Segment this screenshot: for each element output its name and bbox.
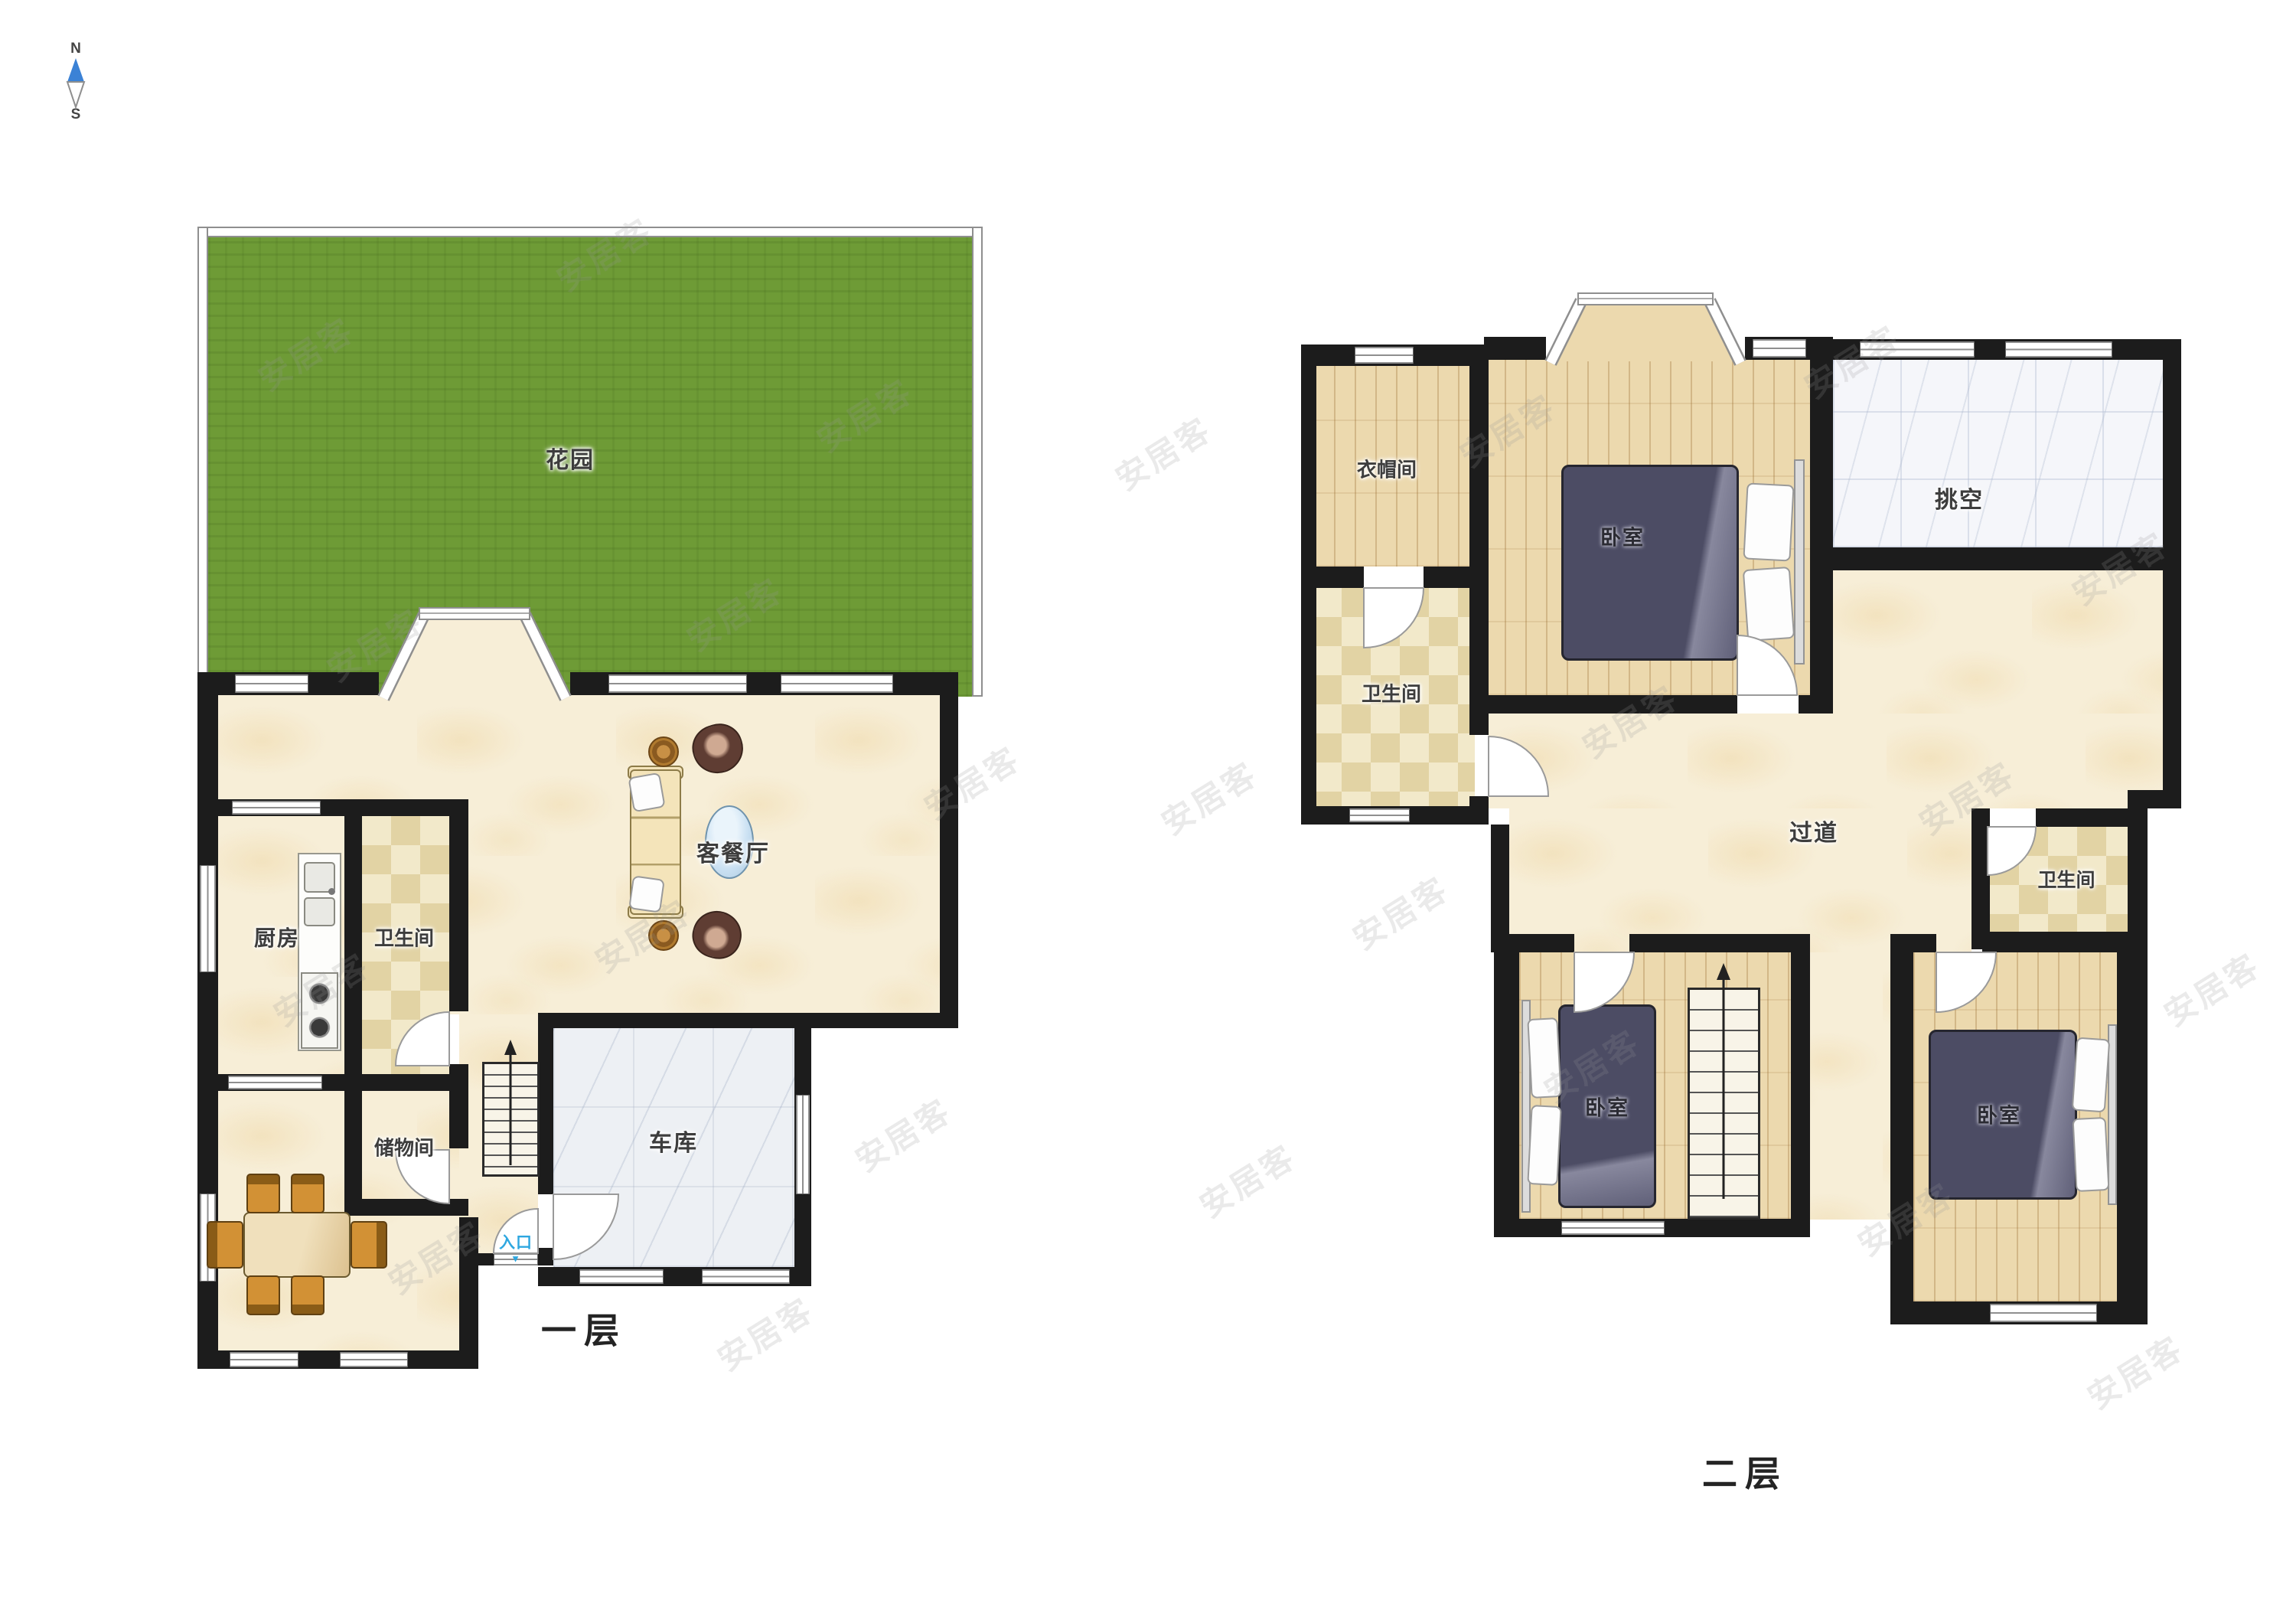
bed-pillow bbox=[1527, 1017, 1561, 1099]
window-icon bbox=[1561, 1221, 1665, 1235]
label-garden: 花园 bbox=[546, 441, 595, 475]
wall bbox=[538, 1248, 553, 1265]
wall bbox=[1799, 695, 1833, 714]
wall bbox=[1890, 934, 1913, 1301]
wall bbox=[449, 816, 468, 1011]
watermark-text: 安居客 bbox=[2077, 1323, 2191, 1419]
bed-pillow bbox=[2073, 1117, 2110, 1192]
watermark-text: 安居客 bbox=[1342, 864, 1456, 959]
label-floor2: 二层 bbox=[1702, 1446, 1788, 1497]
bed-pillow bbox=[1743, 482, 1794, 561]
garden-wall-left bbox=[197, 227, 208, 697]
wall bbox=[2128, 790, 2181, 808]
window-icon bbox=[340, 1352, 408, 1367]
wall bbox=[1484, 695, 1737, 714]
side-table bbox=[648, 920, 679, 951]
window-icon bbox=[1860, 341, 1975, 358]
label-entrance: 入口 bbox=[499, 1230, 533, 1253]
wall bbox=[940, 672, 958, 1028]
bed-headboard bbox=[1794, 459, 1805, 665]
window-icon bbox=[235, 674, 308, 693]
stairs-2f[interactable] bbox=[1688, 988, 1760, 1220]
label-hallway: 过道 bbox=[1789, 814, 1838, 847]
label-bedroom-left: 卧室 bbox=[1585, 1092, 1629, 1122]
wall bbox=[2117, 934, 2148, 1301]
faucet-icon bbox=[328, 888, 335, 895]
window-icon bbox=[228, 1076, 322, 1089]
label-garage: 车库 bbox=[649, 1124, 698, 1158]
wall bbox=[1491, 825, 1509, 934]
watermark-text: 安居客 bbox=[1151, 749, 1265, 844]
stairs-1f[interactable] bbox=[482, 1062, 540, 1177]
compass-south-needle bbox=[67, 82, 84, 107]
wall bbox=[344, 1199, 468, 1216]
bed-pillow bbox=[1743, 567, 1795, 642]
wall bbox=[1833, 547, 2181, 570]
window-icon bbox=[200, 865, 216, 972]
wall bbox=[538, 1013, 553, 1194]
dining-chair bbox=[291, 1275, 325, 1315]
wall bbox=[449, 1064, 468, 1074]
bed-pillow bbox=[2072, 1037, 2111, 1113]
wall bbox=[459, 1217, 478, 1369]
watermark-text: 安居客 bbox=[1189, 1132, 1303, 1227]
bed-pillow bbox=[1527, 1105, 1561, 1186]
wall bbox=[2163, 339, 2181, 808]
floorplan-canvas: N S bbox=[0, 0, 2296, 1623]
wall bbox=[1484, 337, 1546, 360]
garden-wall-top bbox=[197, 227, 983, 237]
bed-main bbox=[1561, 465, 1739, 661]
sofa-pillow bbox=[628, 772, 665, 813]
entrance-arrow-icon: ▼ bbox=[510, 1253, 521, 1265]
wall bbox=[344, 1091, 362, 1199]
label-living-dining: 客餐厅 bbox=[696, 834, 770, 868]
room-void bbox=[1833, 360, 2163, 547]
wall bbox=[344, 816, 362, 1074]
label-kitchen: 厨房 bbox=[254, 922, 300, 952]
wall bbox=[1494, 934, 1519, 1219]
window-icon bbox=[702, 1269, 790, 1284]
wall bbox=[1424, 567, 1489, 588]
side-table bbox=[648, 736, 679, 767]
wall bbox=[1971, 808, 1990, 949]
element bbox=[1551, 301, 1581, 363]
wall bbox=[2128, 808, 2148, 949]
label-bedroom-main: 卧室 bbox=[1600, 521, 1645, 551]
wall bbox=[538, 1013, 958, 1028]
wall bbox=[1629, 934, 1810, 952]
window-icon bbox=[1349, 808, 1410, 822]
wall bbox=[1469, 345, 1489, 735]
compass-south-label: S bbox=[71, 106, 81, 123]
wall bbox=[1791, 934, 1810, 1219]
compass-north-label: N bbox=[70, 41, 81, 57]
watermark-text: 安居客 bbox=[1105, 404, 1219, 500]
dining-chair bbox=[207, 1221, 243, 1269]
label-bedroom-right: 卧室 bbox=[1977, 1099, 2021, 1129]
compass-north-needle bbox=[67, 58, 84, 82]
element bbox=[1710, 301, 1740, 363]
window-icon bbox=[781, 674, 893, 693]
stove bbox=[301, 972, 338, 1049]
label-cloakroom: 衣帽间 bbox=[1357, 455, 1417, 483]
window-icon bbox=[232, 801, 321, 815]
element bbox=[1551, 301, 1581, 363]
window-icon bbox=[1355, 347, 1414, 364]
dining-chair bbox=[246, 1275, 280, 1315]
room-hallway bbox=[1489, 714, 2163, 808]
dining-chair bbox=[246, 1174, 280, 1213]
window-icon bbox=[1753, 339, 1806, 358]
dining-chair bbox=[351, 1221, 387, 1269]
label-floor1: 一层 bbox=[541, 1303, 627, 1354]
wall bbox=[1971, 932, 2148, 949]
watermark-text: 安居客 bbox=[845, 1086, 959, 1181]
element bbox=[1578, 293, 1713, 305]
sink-basin bbox=[304, 897, 335, 926]
window-icon bbox=[579, 1269, 664, 1284]
label-bathroom-2f-right: 卫生间 bbox=[2037, 865, 2095, 893]
label-storage: 储物间 bbox=[374, 1133, 434, 1161]
garden-wall-right bbox=[972, 227, 983, 697]
bay-window-floor-2f bbox=[1546, 299, 1745, 361]
dining-chair bbox=[291, 1174, 325, 1213]
watermark-text: 安居客 bbox=[707, 1285, 821, 1380]
window-icon bbox=[230, 1352, 298, 1367]
wall bbox=[1301, 567, 1364, 588]
window-icon bbox=[796, 1095, 810, 1194]
element bbox=[1710, 301, 1740, 363]
wall bbox=[449, 1091, 468, 1148]
watermark-text: 安居客 bbox=[2154, 940, 2268, 1036]
window-icon bbox=[2005, 341, 2112, 358]
window-icon bbox=[1990, 1304, 2097, 1322]
label-void: 挑空 bbox=[1935, 481, 1984, 514]
label-bathroom-1f: 卫生间 bbox=[374, 923, 434, 952]
sofa-pillow bbox=[628, 875, 665, 913]
wall bbox=[1810, 337, 1833, 714]
label-bathroom-2f-left: 卫生间 bbox=[1362, 679, 1421, 707]
room-hallway bbox=[1509, 808, 1971, 952]
dining-table bbox=[243, 1212, 351, 1278]
window-icon bbox=[608, 674, 747, 693]
